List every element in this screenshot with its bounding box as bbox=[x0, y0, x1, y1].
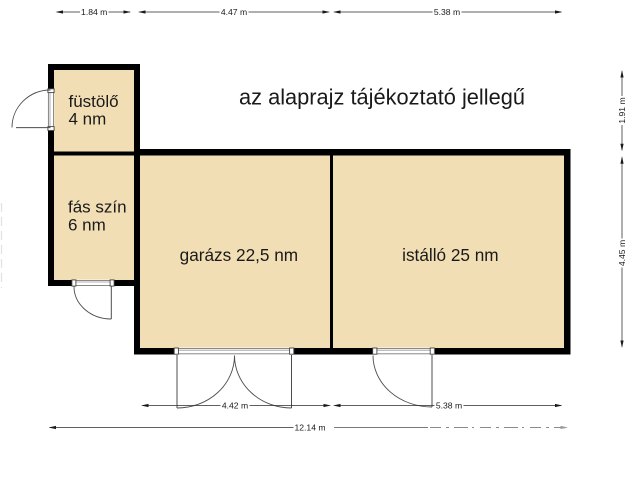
svg-text:1.91 m: 1.91 m bbox=[617, 97, 627, 123]
svg-text:garázs 22,5 nm: garázs 22,5 nm bbox=[180, 245, 298, 265]
svg-text:4.47 m: 4.47 m bbox=[221, 7, 247, 17]
svg-text:5.38 m: 5.38 m bbox=[434, 7, 460, 17]
svg-text:1.84 m: 1.84 m bbox=[81, 7, 107, 17]
svg-text:4.45 m: 4.45 m bbox=[617, 240, 627, 266]
svg-text:fás szín: fás szín bbox=[68, 198, 127, 217]
svg-text:istálló 25 nm: istálló 25 nm bbox=[402, 245, 499, 265]
svg-text:füstölő: füstölő bbox=[69, 92, 119, 111]
svg-text:4.42 m: 4.42 m bbox=[222, 401, 248, 411]
svg-text:az alaprajz tájékoztató jelleg: az alaprajz tájékoztató jellegű bbox=[239, 85, 525, 110]
svg-text:6 nm: 6 nm bbox=[68, 216, 106, 235]
svg-text:4 nm: 4 nm bbox=[69, 110, 107, 129]
svg-text:12.14 m: 12.14 m bbox=[294, 423, 325, 433]
svg-text:5.38 m: 5.38 m bbox=[436, 401, 462, 411]
